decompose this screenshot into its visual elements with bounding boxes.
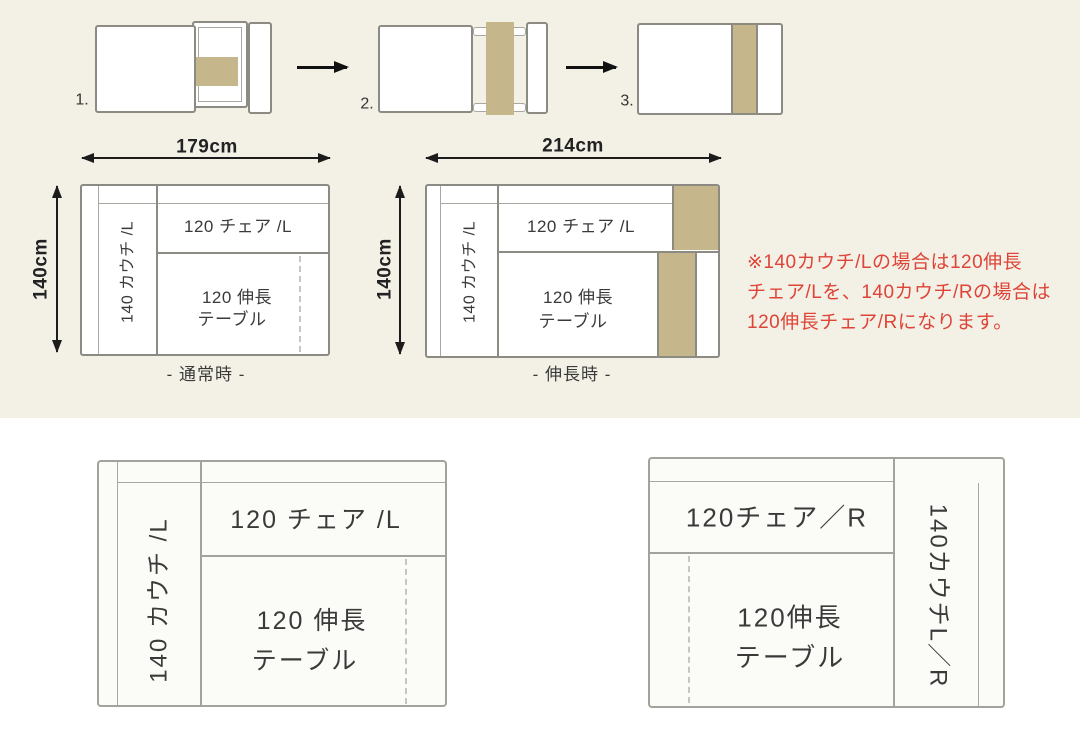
normal-table-dashed-line (299, 256, 301, 352)
extended-height-label: 140cm (375, 238, 398, 300)
step1-extension-leaf (196, 57, 238, 86)
step2-to-step3-arrow-icon (566, 66, 616, 69)
layout-left-table-label-line2: テーブル (252, 646, 359, 676)
layout-right-table-dashed-line (688, 556, 690, 703)
couch-variant-note: ※140カウチ/Lの場合は120伸長 チェア/Lを、140カウチ/Rの場合は 1… (747, 248, 1051, 338)
step3-sofa-body (637, 23, 783, 115)
normal-backrest-line-left (98, 186, 99, 354)
normal-table-label-line1: 120 伸長 (202, 288, 272, 308)
layout-right-backrest-line-top (650, 481, 895, 482)
layout-left-table-dashed-line (405, 559, 407, 704)
extended-chair-label: 120 チェア /L (527, 217, 635, 237)
layout-left-chair-label: 120 チェア /L (230, 505, 401, 535)
step2-sofa-body (378, 25, 473, 113)
extended-chair-extension-block (672, 186, 718, 250)
normal-height-arrow-icon (56, 186, 58, 352)
normal-width-arrow-icon (82, 157, 330, 159)
extended-width-label: 214cm (542, 136, 604, 159)
layout-right-chair-label: 120チェア／R (686, 502, 868, 533)
extended-caption: - 伸長時 - (533, 365, 612, 385)
extended-backrest-line-top (441, 203, 672, 204)
layout-right-couch-divider (893, 457, 895, 708)
layout-left-couch-label: 140 カウチ /L (146, 517, 175, 682)
step1-sofa-body (95, 25, 196, 113)
extended-width-arrow-icon (426, 157, 721, 159)
step3-number: 3. (620, 91, 633, 110)
extended-height-arrow-icon (399, 186, 401, 354)
step1-table-end (248, 22, 272, 114)
extended-couch-label: 140 カウチ /L (460, 221, 479, 323)
layout-right-table-label-line1: 120伸長 (737, 602, 842, 633)
extended-chair-table-divider (498, 251, 720, 253)
step2-table-end (526, 22, 548, 114)
extended-couch-divider (497, 184, 499, 358)
layout-right-couch-label: 140カウチL／R (923, 504, 952, 689)
extended-backrest-line-left (440, 186, 441, 356)
layout-left-table-label-line1: 120 伸長 (257, 606, 368, 636)
normal-width-label: 179cm (176, 137, 238, 160)
normal-caption: - 通常時 - (167, 365, 246, 385)
normal-chair-table-divider (157, 252, 330, 254)
note-line2: チェア/Lを、140カウチ/Rの場合は (747, 278, 1051, 308)
extended-table-label-line2: テーブル (539, 312, 608, 332)
layout-left-backrest-line-top (118, 482, 445, 483)
step1-to-step2-arrow-icon (297, 66, 347, 69)
layout-right-table-label-line2: テーブル (735, 642, 845, 673)
normal-table-label-line2: テーブル (198, 310, 267, 330)
layout-left-chair-table-divider (201, 555, 447, 557)
normal-height-label: 140cm (31, 238, 54, 300)
step2-number: 2. (360, 94, 373, 113)
step3-extension-leaf (731, 25, 758, 113)
normal-couch-label: 140 カウチ /L (118, 221, 137, 323)
step2-extension-leaf (486, 22, 514, 115)
normal-couch-divider (156, 184, 158, 356)
layout-right-backrest-line-right (978, 483, 979, 706)
layout-right-chair-table-divider (648, 552, 895, 554)
sofa-dimension-infographic: 1. 2. 3. 179cm 214cm 140cm 140 カウチ /L 12… (0, 0, 1080, 743)
normal-chair-label: 120 チェア /L (184, 217, 292, 237)
note-line1: ※140カウチ/Lの場合は120伸長 (747, 248, 1051, 278)
layout-left-couch-divider (200, 460, 202, 707)
extended-table-extension-strip (657, 252, 697, 356)
layout-left-backrest-line-left (117, 462, 118, 705)
note-line3: 120伸長チェア/Rになります。 (747, 308, 1051, 338)
normal-backrest-line-top (99, 203, 328, 204)
extended-table-label-line1: 120 伸長 (543, 288, 613, 308)
step1-number: 1. (75, 90, 88, 109)
